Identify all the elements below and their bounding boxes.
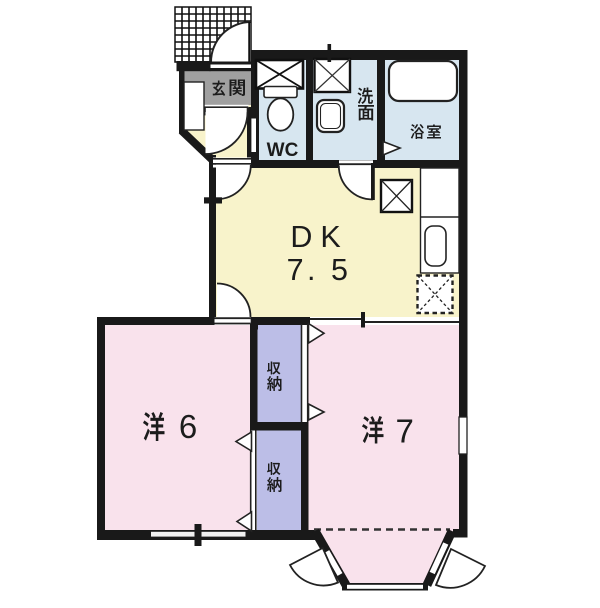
svg-text:7: 7 bbox=[396, 413, 414, 450]
svg-text:6: 6 bbox=[179, 408, 197, 445]
svg-text:DK: DK bbox=[290, 220, 348, 254]
svg-text:7. 5: 7. 5 bbox=[287, 253, 352, 287]
svg-text:WC: WC bbox=[267, 140, 299, 161]
